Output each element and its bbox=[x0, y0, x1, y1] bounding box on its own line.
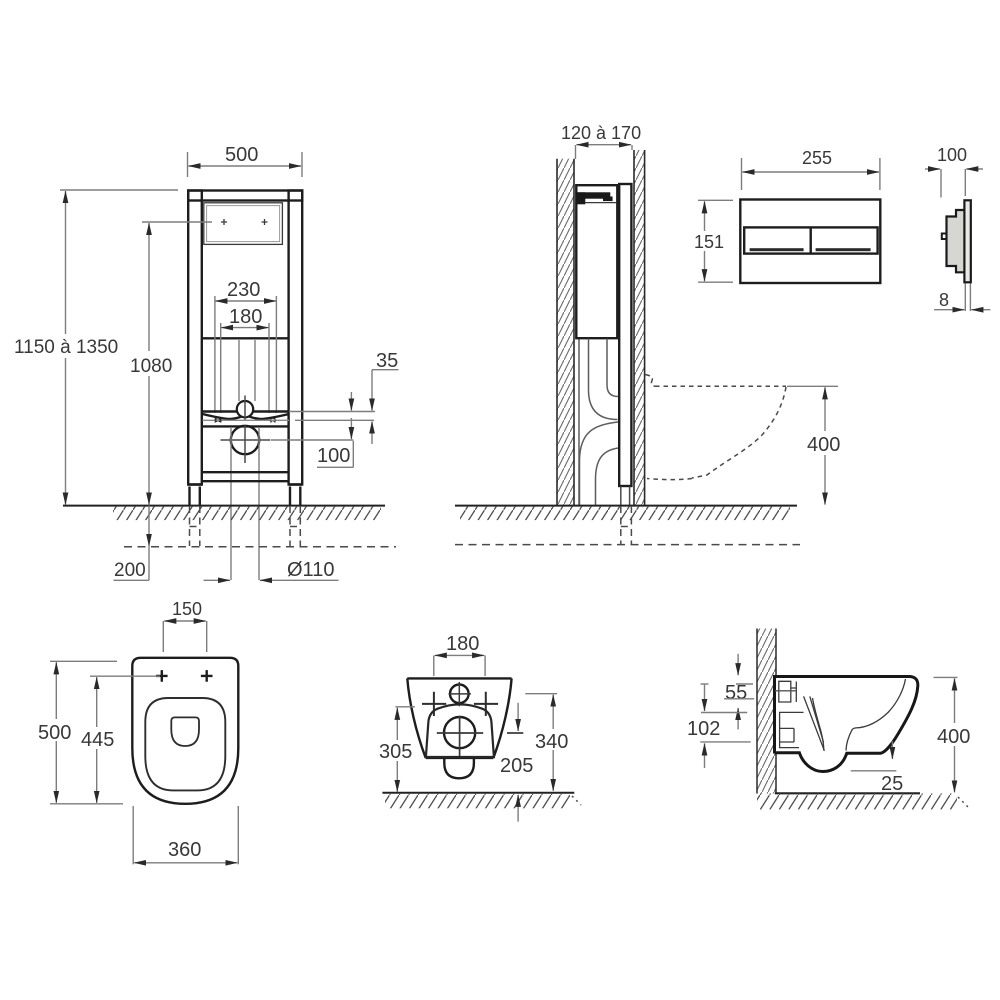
svg-text:120 à 170: 120 à 170 bbox=[561, 123, 641, 143]
svg-text:1150 à 1350: 1150 à 1350 bbox=[14, 337, 118, 358]
svg-text:230: 230 bbox=[227, 279, 260, 301]
svg-text:500: 500 bbox=[38, 722, 71, 744]
svg-text:100: 100 bbox=[317, 445, 350, 467]
svg-text:500: 500 bbox=[225, 144, 258, 166]
svg-text:180: 180 bbox=[446, 633, 479, 655]
svg-text:205: 205 bbox=[500, 755, 533, 777]
svg-text:180: 180 bbox=[229, 306, 262, 328]
svg-text:400: 400 bbox=[807, 434, 840, 456]
svg-text:55: 55 bbox=[725, 682, 747, 704]
svg-text:8: 8 bbox=[939, 290, 949, 310]
svg-text:360: 360 bbox=[168, 839, 201, 861]
svg-text:255: 255 bbox=[802, 148, 832, 168]
svg-text:35: 35 bbox=[376, 350, 398, 372]
svg-text:100: 100 bbox=[937, 145, 967, 165]
svg-text:445: 445 bbox=[81, 729, 114, 751]
svg-text:340: 340 bbox=[535, 731, 568, 753]
svg-text:25: 25 bbox=[881, 773, 903, 795]
svg-text:102: 102 bbox=[687, 718, 720, 740]
svg-text:Ø110: Ø110 bbox=[287, 559, 334, 581]
svg-text:1080: 1080 bbox=[130, 356, 172, 377]
svg-text:151: 151 bbox=[694, 232, 724, 252]
svg-text:305: 305 bbox=[379, 741, 412, 763]
svg-text:150: 150 bbox=[172, 599, 202, 619]
svg-text:400: 400 bbox=[937, 726, 970, 748]
svg-text:200: 200 bbox=[114, 560, 146, 581]
